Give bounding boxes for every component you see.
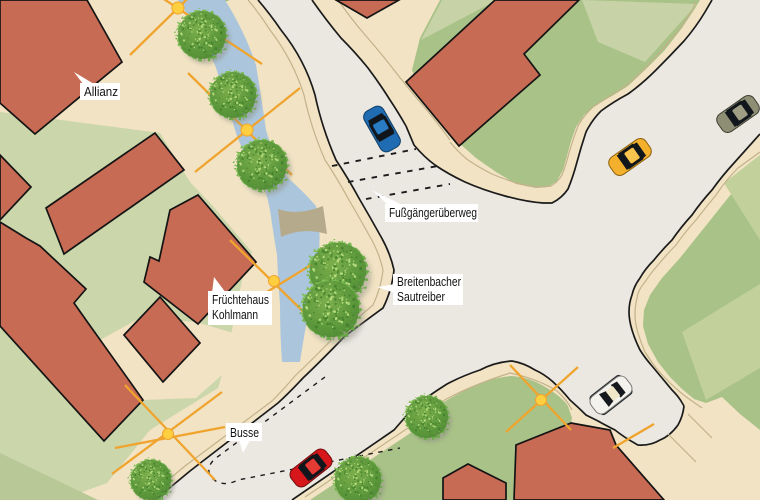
svg-text:Früchtehaus: Früchtehaus [212,292,269,307]
svg-text:Busse: Busse [230,425,259,440]
svg-text:Breitenbacher: Breitenbacher [397,274,462,289]
svg-text:Allianz: Allianz [84,84,118,99]
svg-text:Fußgängerüberweg: Fußgängerüberweg [389,205,477,220]
svg-text:Kohlmann: Kohlmann [212,307,258,322]
svg-text:Sautreiber: Sautreiber [397,289,446,304]
